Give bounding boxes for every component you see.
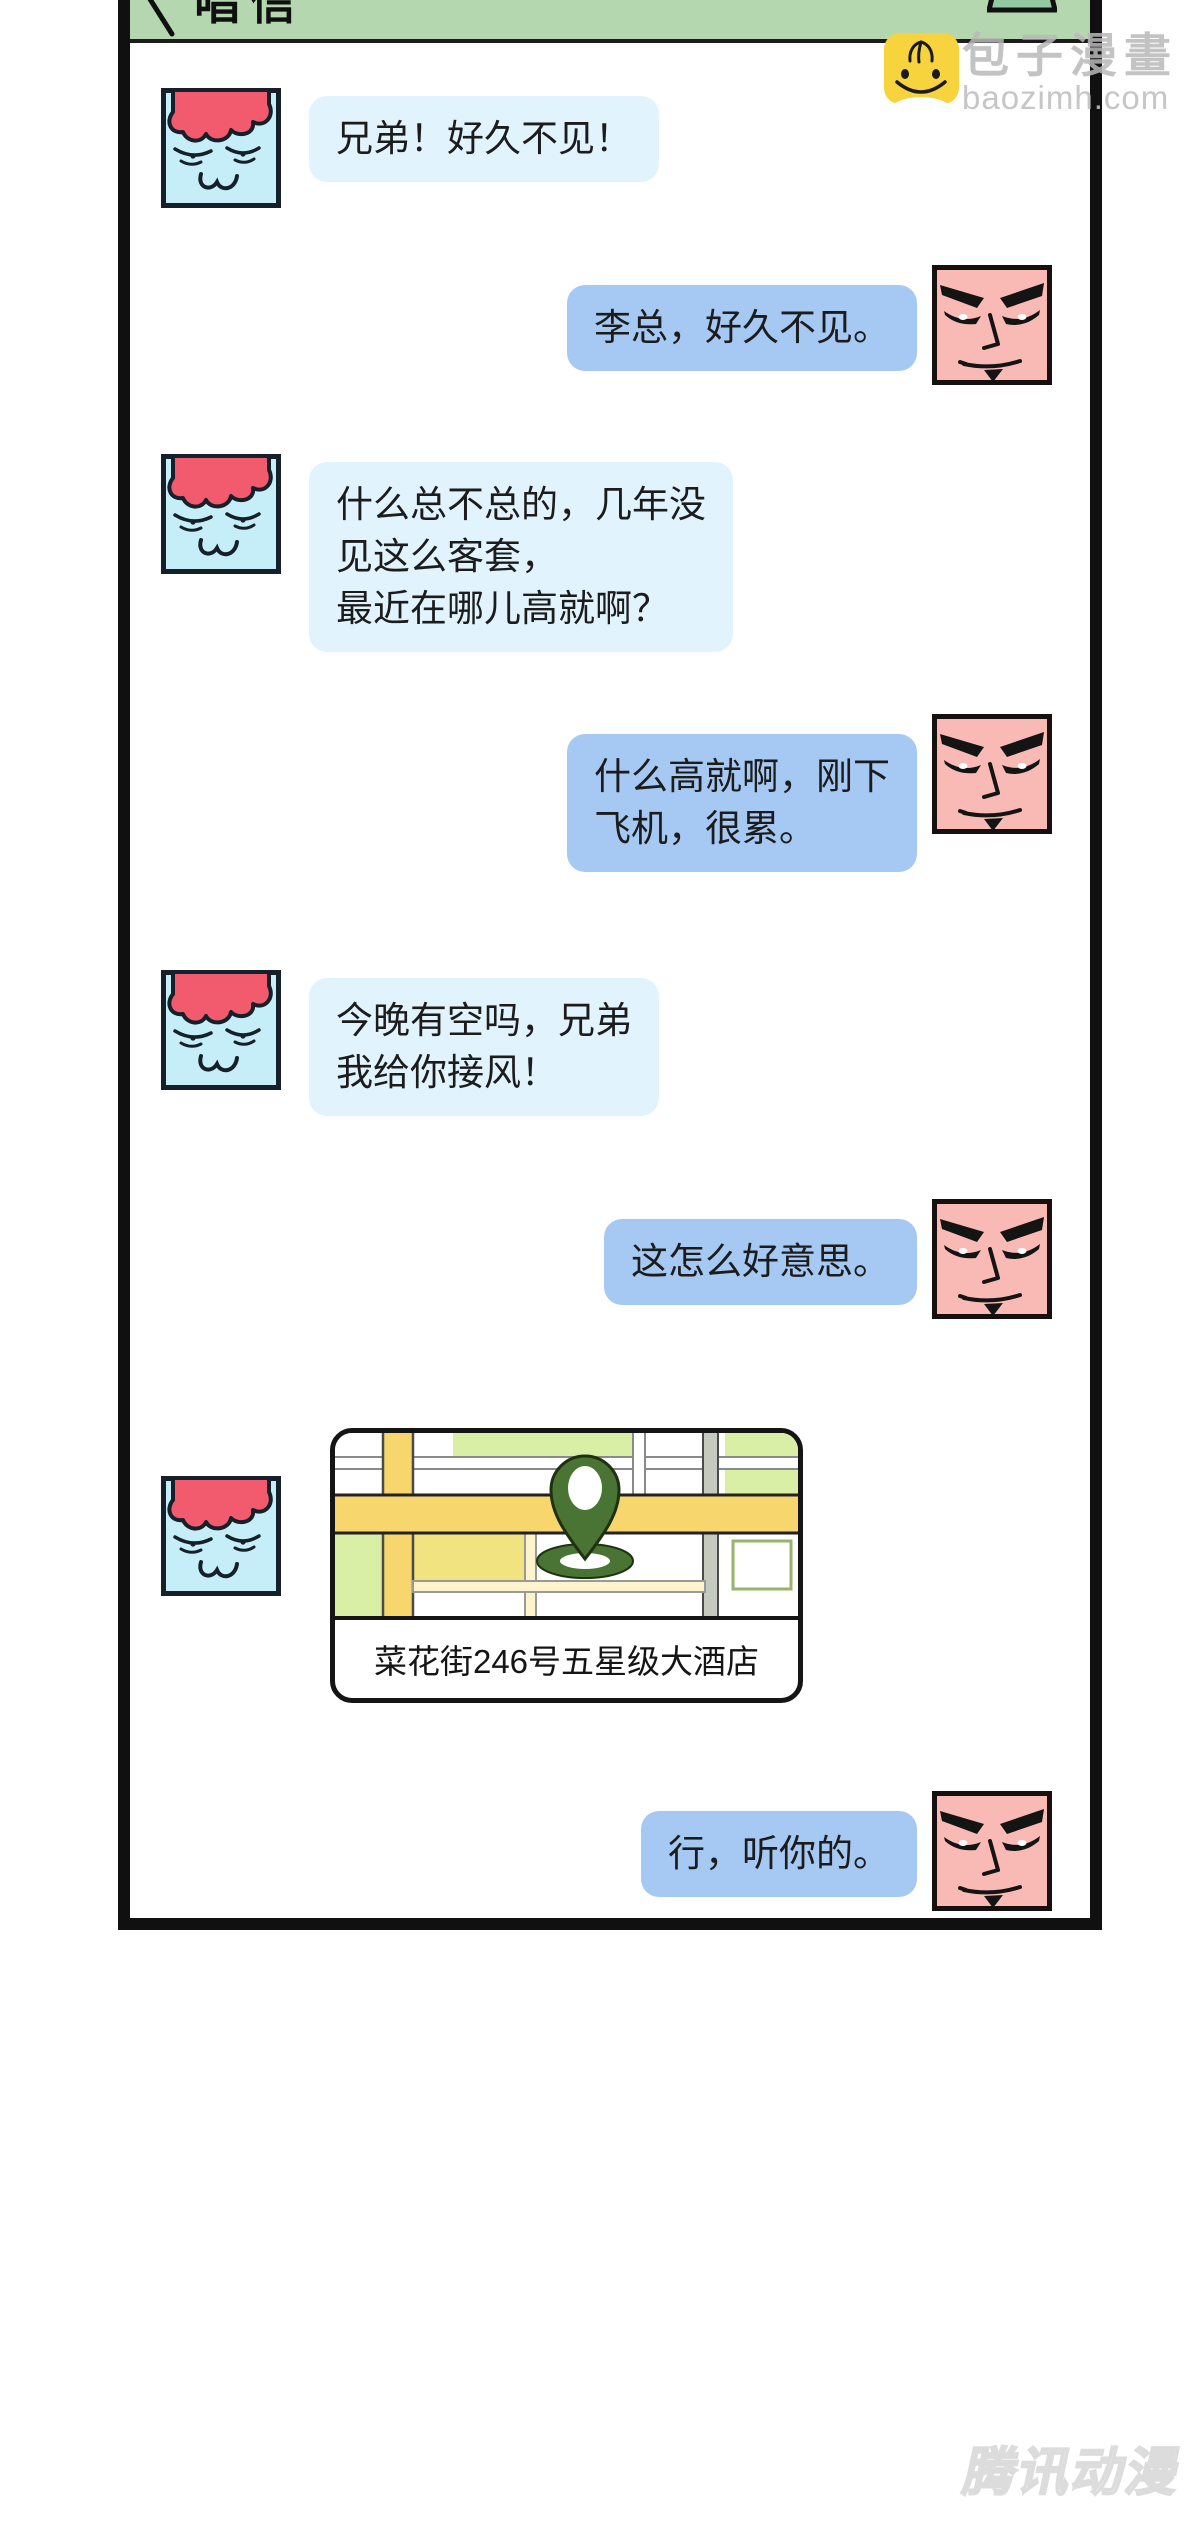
back-icon[interactable] <box>140 0 186 39</box>
avatar-li <box>160 1476 282 1596</box>
location-card[interactable]: 菜花街246号五星级大酒店 <box>330 1428 803 1703</box>
map-image <box>335 1433 798 1616</box>
avatar-wang <box>931 1791 1053 1911</box>
avatar-wang <box>931 265 1053 385</box>
avatar-li <box>160 970 282 1090</box>
chat-title: 唱信 <box>194 0 306 33</box>
chat-bubble: 这怎么好意思。 <box>604 1219 917 1305</box>
location-caption: 菜花街246号五星级大酒店 <box>335 1616 798 1698</box>
avatar-li <box>160 454 282 574</box>
chat-bubble: 兄弟！好久不见！ <box>309 96 659 182</box>
chat-bubble: 李总，好久不见。 <box>567 285 917 371</box>
chat-body: 兄弟！好久不见！ 李总，好久不见。 什么总不总的，几年没 见这么客套， 最近在哪… <box>130 88 1090 1911</box>
message-row: 李总，好久不见。 <box>130 265 1090 385</box>
message-row: 这怎么好意思。 <box>130 1199 1090 1319</box>
message-row: 行，听你的。 <box>130 1791 1090 1911</box>
chat-bubble: 什么总不总的，几年没 见这么客套， 最近在哪儿高就啊？ <box>309 462 733 652</box>
watermark-brand: 包子漫畫 <box>962 32 1178 80</box>
avatar-wang <box>931 1199 1053 1319</box>
baozi-mascot-icon <box>883 32 960 105</box>
avatar-li <box>160 88 282 208</box>
chat-bubble: 今晚有空吗，兄弟 我给你接风！ <box>309 978 659 1116</box>
contact-avatar-icon[interactable] <box>987 0 1057 13</box>
chat-bubble: 行，听你的。 <box>641 1811 917 1897</box>
chat-bubble: 什么高就啊，刚下 飞机，很累。 <box>567 734 917 872</box>
message-row: 什么高就啊，刚下 飞机，很累。 <box>130 714 1090 872</box>
watermark-url: baozimh.com <box>962 80 1178 116</box>
message-row: 今晚有空吗，兄弟 我给你接风！ <box>130 970 1090 1116</box>
watermark-baozimh: 包子漫畫 baozimh.com <box>883 32 1178 116</box>
watermark-tencent: 腾讯动漫 <box>958 2430 1190 2505</box>
message-row: 什么总不总的，几年没 见这么客套， 最近在哪儿高就啊？ <box>130 454 1090 652</box>
avatar-wang <box>931 714 1053 834</box>
message-row-location: 菜花街246号五星级大酒店 <box>130 1428 1090 1703</box>
chat-window: 唱信 兄弟！好久不见！ 李总，好久不见。 什么总不总的，几年没 见这么客套， 最… <box>118 0 1102 1930</box>
